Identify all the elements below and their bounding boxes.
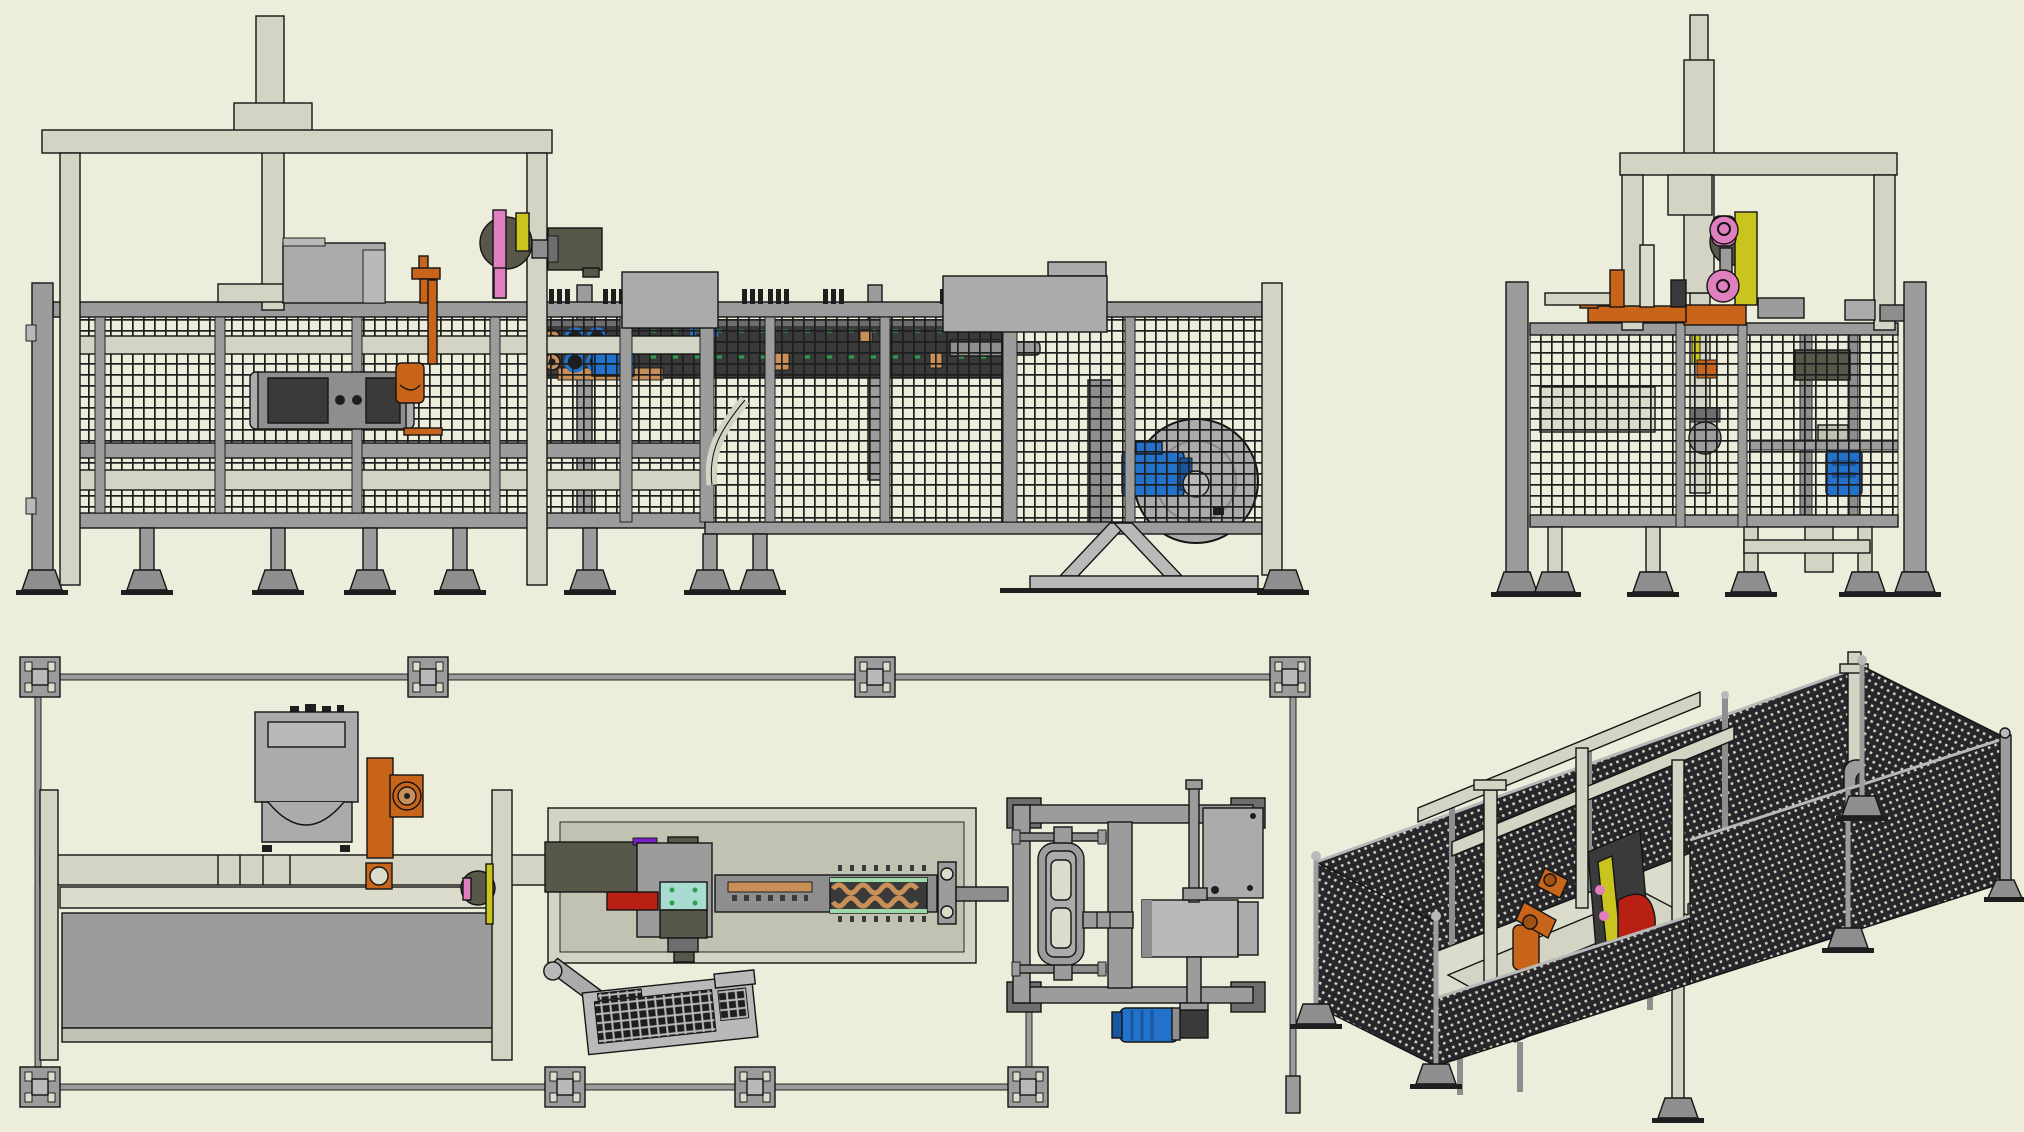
plan-feeder-enclosure [545,808,1008,963]
machine-multiview-drawing [0,0,2024,1132]
plan-decoiler-motor [1120,1008,1178,1042]
front-elevation-view [16,16,1309,595]
cage-mesh [1530,335,1898,515]
cad-drawing-canvas [0,0,2024,1132]
press-machine-head [218,238,385,303]
fence-end-bracket [1286,1076,1300,1113]
top-plan-view [20,657,1310,1113]
side-legs [1548,527,1872,572]
fence-legs [140,528,767,572]
guard-plate-mid [622,272,718,328]
side-elevation-view [1491,15,1941,597]
plan-press [255,704,358,852]
side-gantry [1620,15,1897,330]
plan-decoiler [1007,780,1265,1042]
plan-coil-roll [1142,900,1238,957]
side-feet [1491,572,1941,597]
isometric-view [1290,652,2024,1123]
pink-slide-unit [480,210,532,298]
control-box [250,372,414,429]
fence-corner-post-right [1262,283,1282,575]
side-post-right [1904,282,1926,572]
side-post-left [1506,282,1528,572]
roll-forming-head [1545,212,1905,325]
plan-red-bar [607,892,658,910]
guard-plate-right [943,276,1107,332]
safety-fence-mesh-right [620,317,1262,522]
